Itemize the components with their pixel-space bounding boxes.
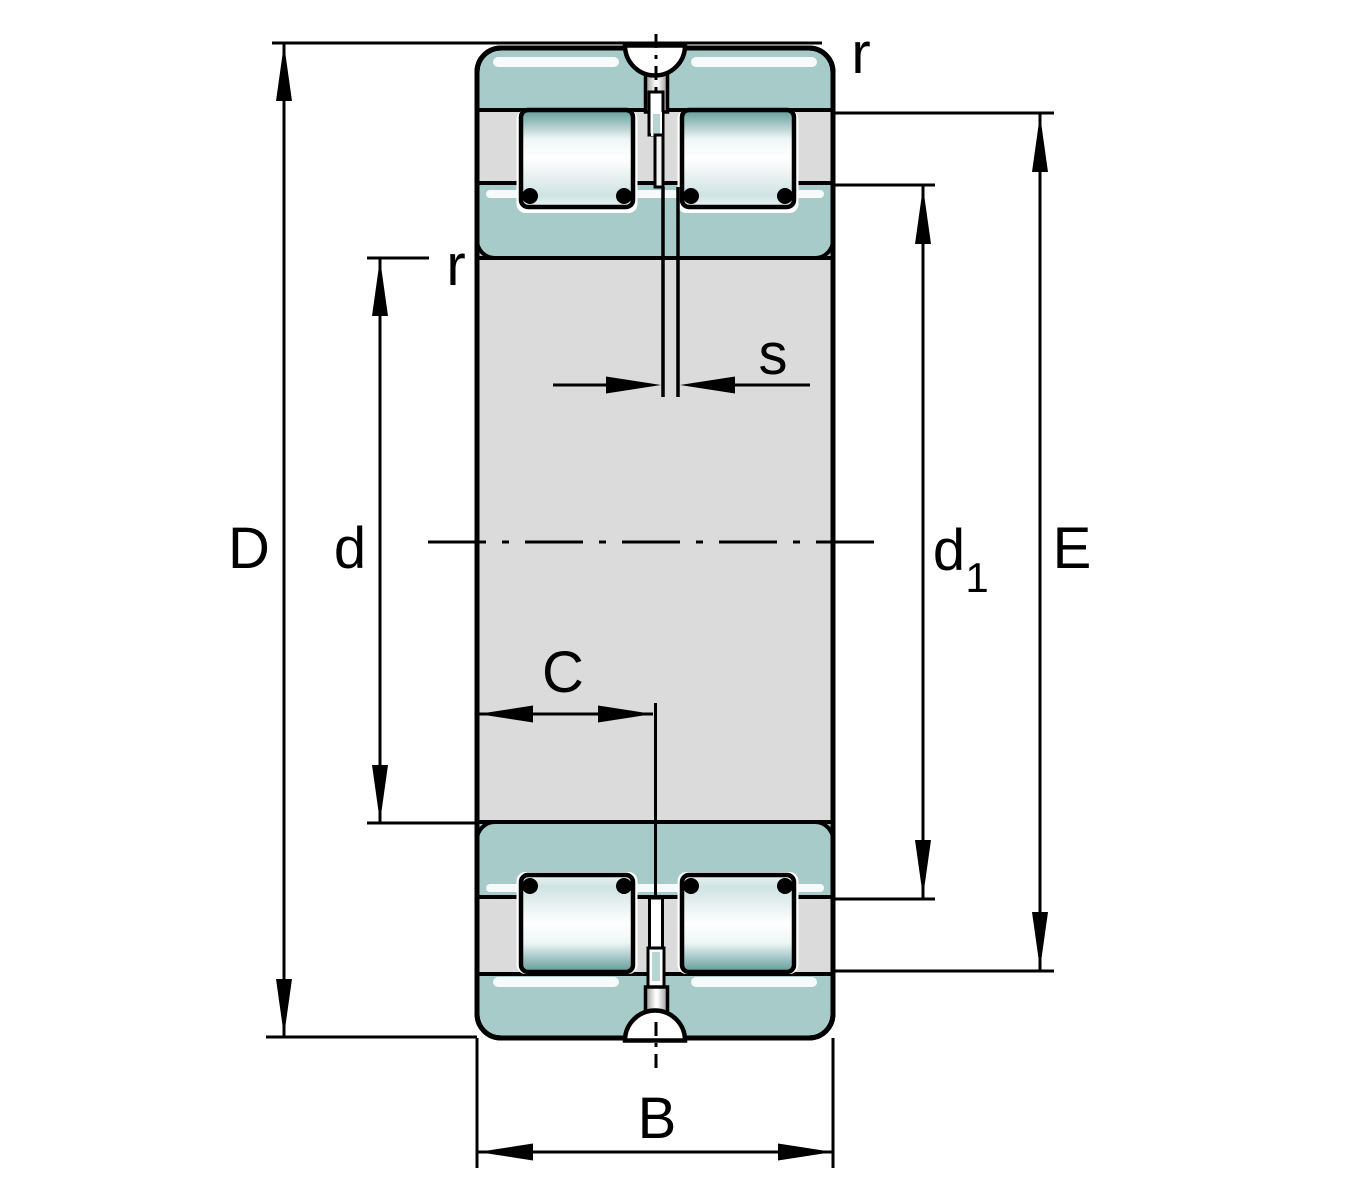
dim-label-r-bore: r bbox=[446, 233, 465, 298]
roller-bottom-left bbox=[521, 875, 633, 972]
dim-label-B: B bbox=[638, 1086, 677, 1151]
roller-corner-dot bbox=[616, 188, 632, 204]
arrow-E-down bbox=[1032, 912, 1048, 969]
dim-label-d1: d bbox=[933, 518, 965, 583]
roller-corner-dot bbox=[522, 188, 538, 204]
roller-top-left bbox=[521, 110, 633, 207]
bearing-drawing: D d r r s C d 1 E B bbox=[0, 0, 1350, 1200]
roller-top-right bbox=[682, 110, 794, 207]
outer-ring-highlight bbox=[493, 977, 619, 987]
roller-corner-dot bbox=[616, 878, 632, 894]
arrow-B-left bbox=[478, 1144, 533, 1161]
arrow-D-up bbox=[276, 44, 292, 101]
arrow-d1-down bbox=[915, 840, 931, 897]
dim-label-d: d bbox=[334, 516, 366, 581]
arrow-d1-up bbox=[915, 187, 931, 244]
roller-corner-dot bbox=[777, 878, 793, 894]
dim-label-C: C bbox=[542, 640, 584, 705]
arrow-E-up bbox=[1032, 115, 1048, 172]
arrow-d-down bbox=[372, 765, 388, 822]
arrow-D-down bbox=[276, 979, 292, 1036]
slot-narrow-bottom bbox=[650, 898, 663, 948]
outer-ring-highlight bbox=[691, 57, 817, 67]
arrow-B-right bbox=[778, 1144, 833, 1161]
roller-corner-dot bbox=[777, 188, 793, 204]
roller-corner-dot bbox=[522, 878, 538, 894]
outer-ring-highlight bbox=[493, 57, 619, 67]
dim-label-d1-subscript: 1 bbox=[965, 554, 988, 601]
roller-corner-dot bbox=[683, 188, 699, 204]
technical-drawing-canvas: D d r r s C d 1 E B bbox=[0, 0, 1350, 1200]
slot-narrow-top bbox=[655, 135, 663, 187]
dim-label-r-outer: r bbox=[851, 21, 870, 86]
dim-label-s: s bbox=[759, 322, 788, 387]
roller-bottom-right bbox=[682, 875, 794, 972]
slot-pocket-top bbox=[652, 113, 661, 135]
dim-label-D: D bbox=[228, 516, 270, 581]
arrow-d-up bbox=[372, 259, 388, 316]
bearing-body bbox=[477, 34, 833, 1070]
slot-pocket-bottom bbox=[651, 951, 661, 982]
roller-corner-dot bbox=[683, 878, 699, 894]
outer-ring-highlight bbox=[691, 977, 817, 987]
dim-label-E: E bbox=[1053, 516, 1092, 581]
